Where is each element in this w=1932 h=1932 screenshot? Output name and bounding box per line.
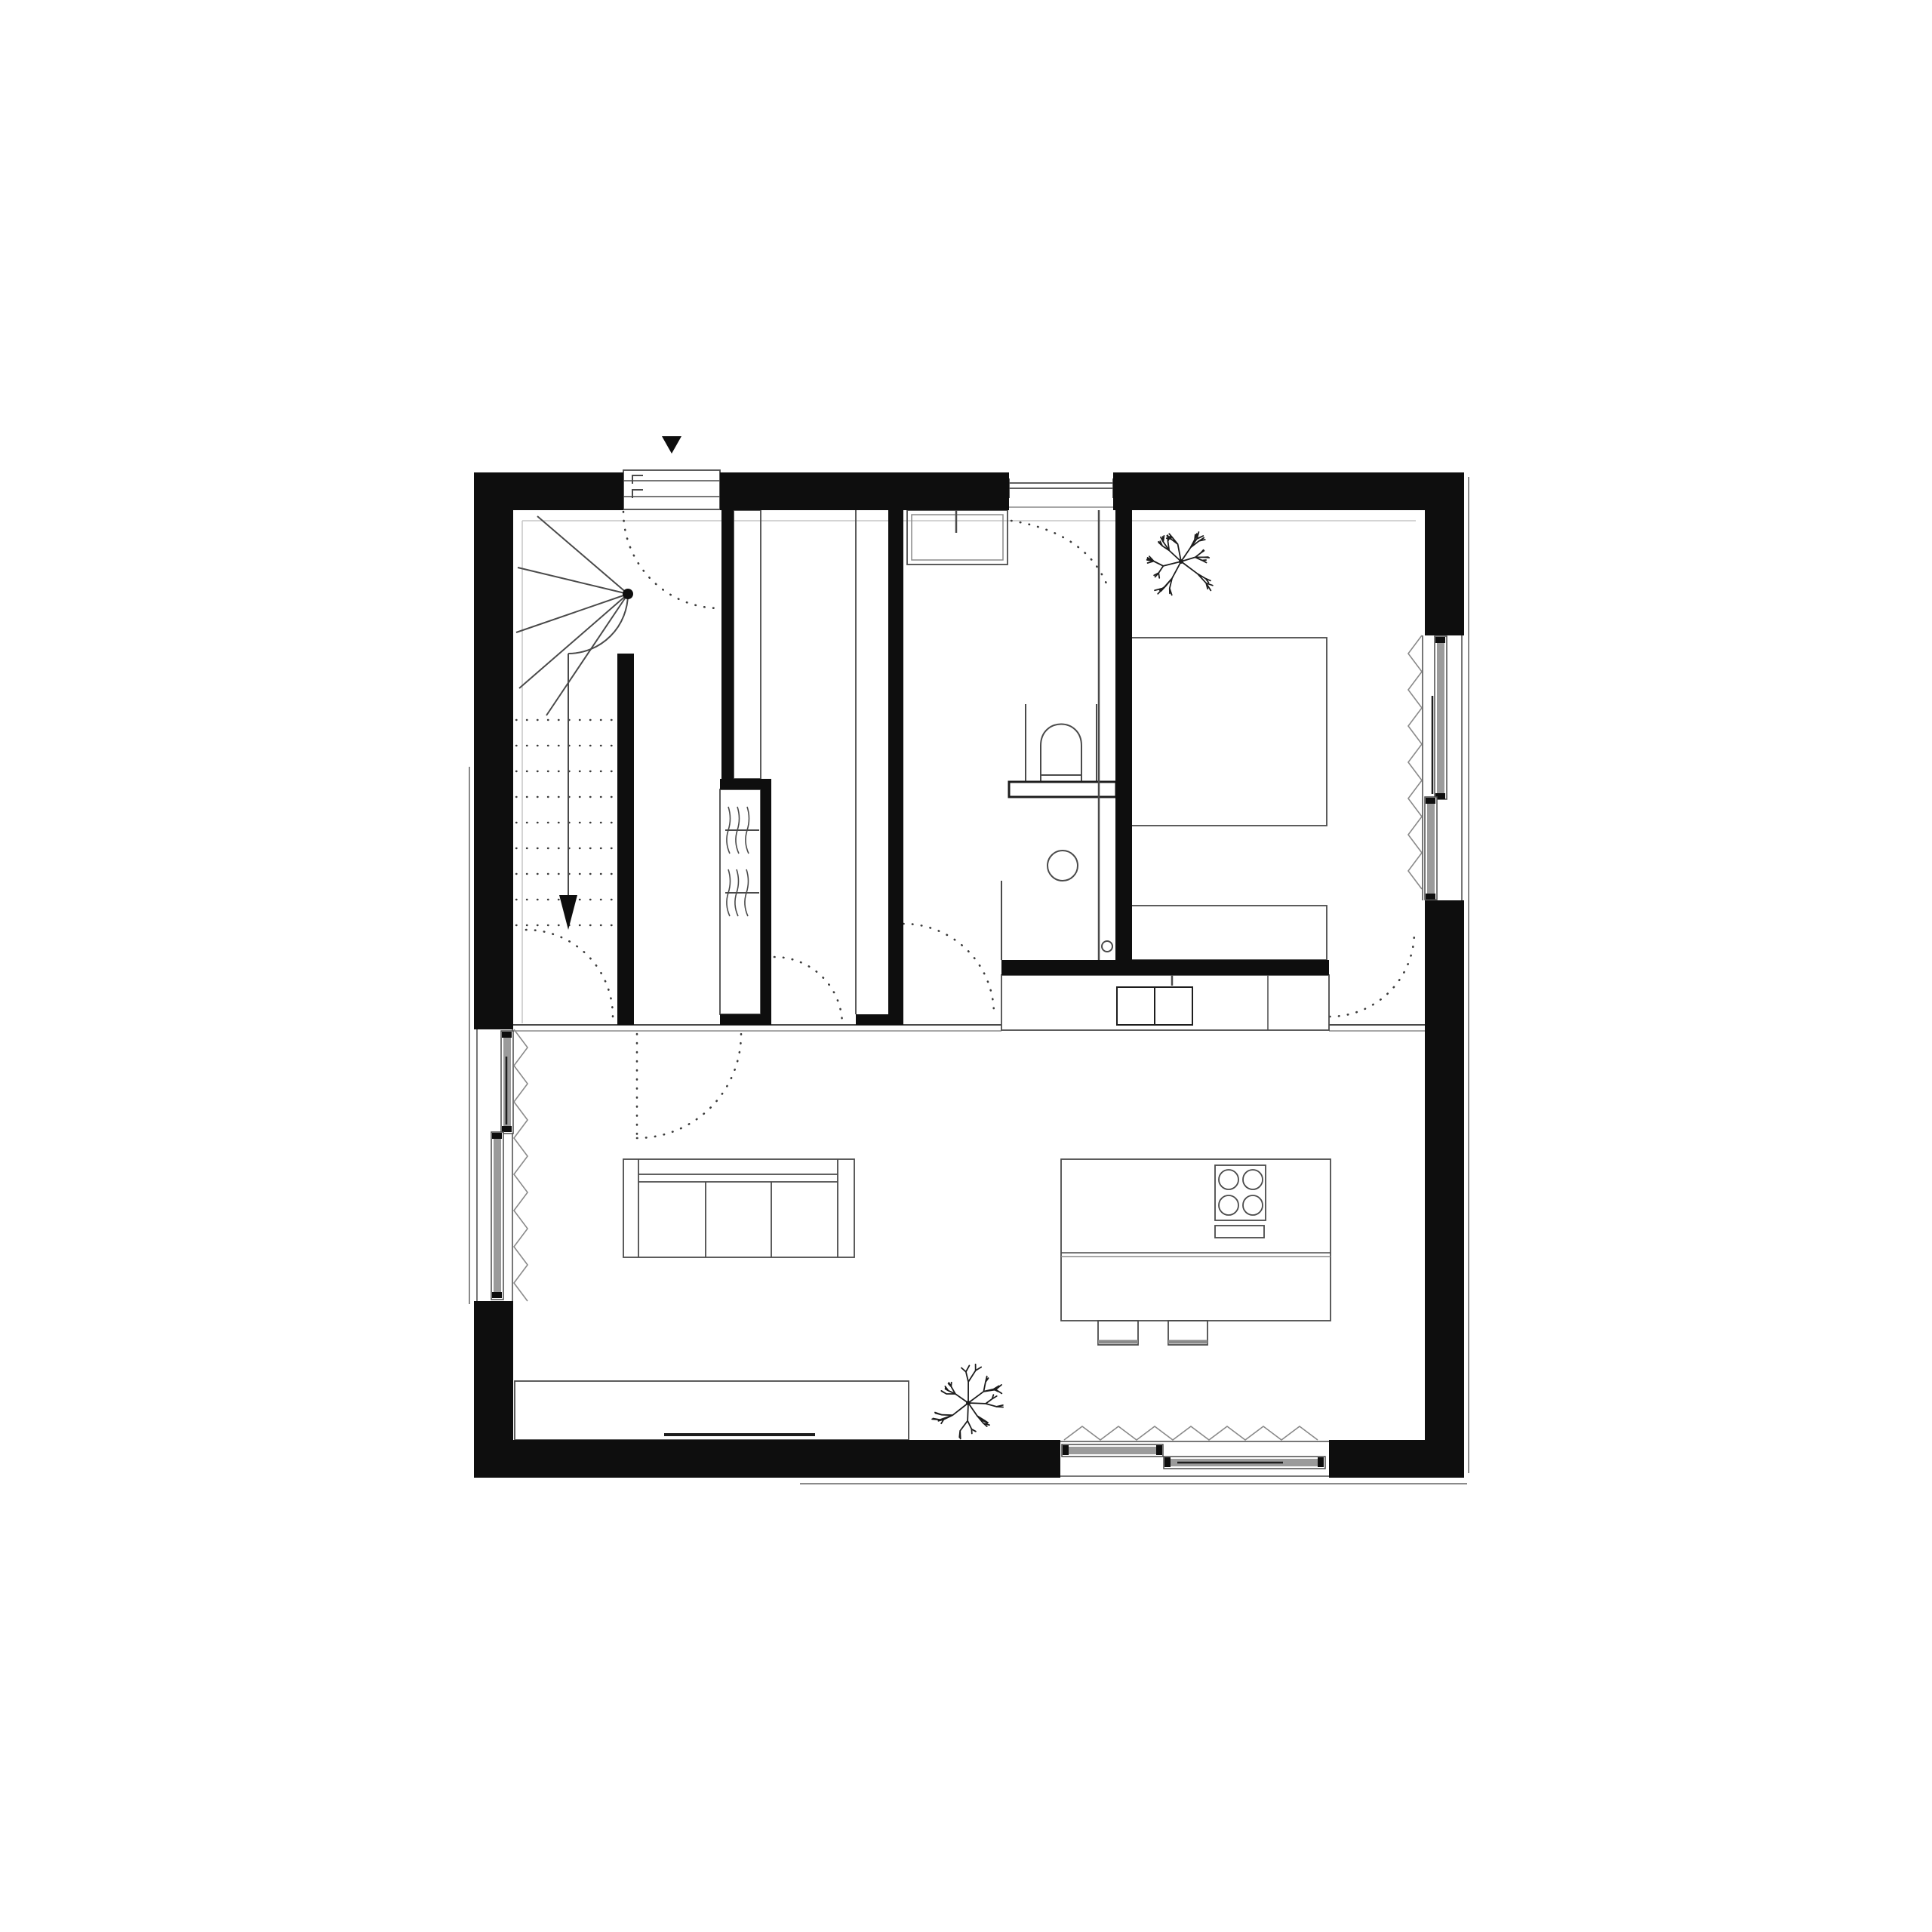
wall-closet-cap-top: [720, 779, 771, 789]
window-bottom-panel-2-cap-a: [1164, 1457, 1171, 1467]
window-right-panel-1-glass: [1437, 642, 1444, 793]
wall-niche-cap: [856, 1014, 888, 1025]
window-bottom-panel-1-cap-a: [1063, 1445, 1069, 1455]
wall-bedroom-partition: [1115, 510, 1132, 960]
wall-top-middle: [720, 472, 1009, 510]
window-right-panel-1-cap-a: [1435, 637, 1445, 643]
wall-left-upper: [474, 472, 513, 1029]
window-right-panel-2-glass: [1427, 803, 1435, 894]
wall-top-right: [1113, 472, 1464, 510]
floor-plan-drawing: [0, 0, 1932, 1932]
window-bottom-panel-1-glass: [1066, 1447, 1158, 1454]
window-left-panel-1-cap-b: [502, 1126, 512, 1132]
window-bottom-panel-1-cap-b: [1156, 1445, 1162, 1455]
stair-walkline-start-dot: [623, 589, 633, 599]
plant-bedroom-center: [1179, 559, 1183, 564]
wall-right-lower: [1425, 900, 1464, 1476]
wall-stair: [617, 654, 634, 1025]
wall-closet-left: [721, 510, 734, 779]
window-left-panel-2-cap-b: [492, 1292, 502, 1298]
wall-bottom-left: [474, 1440, 1060, 1478]
floor-plan-page: [0, 0, 1932, 1932]
window-bottom-panel-2-cap-b: [1318, 1457, 1324, 1467]
canvas-background: [0, 0, 1932, 1932]
plant-living-center: [966, 1401, 971, 1405]
wall-kitchen-back: [1001, 960, 1329, 975]
window-left-panel-2-cap-a: [492, 1133, 502, 1139]
wall-closet-right: [761, 789, 771, 1014]
wall-closet-cap-bottom: [720, 1014, 771, 1025]
window-left-panel-2-glass: [494, 1138, 501, 1294]
window-left-panel-1-cap-a: [502, 1032, 512, 1038]
wall-bathroom-left: [888, 510, 903, 1025]
wall-right-upper: [1425, 472, 1464, 635]
window-right-panel-2-cap-b: [1426, 894, 1435, 900]
window-right-panel-2-cap-a: [1426, 798, 1435, 804]
